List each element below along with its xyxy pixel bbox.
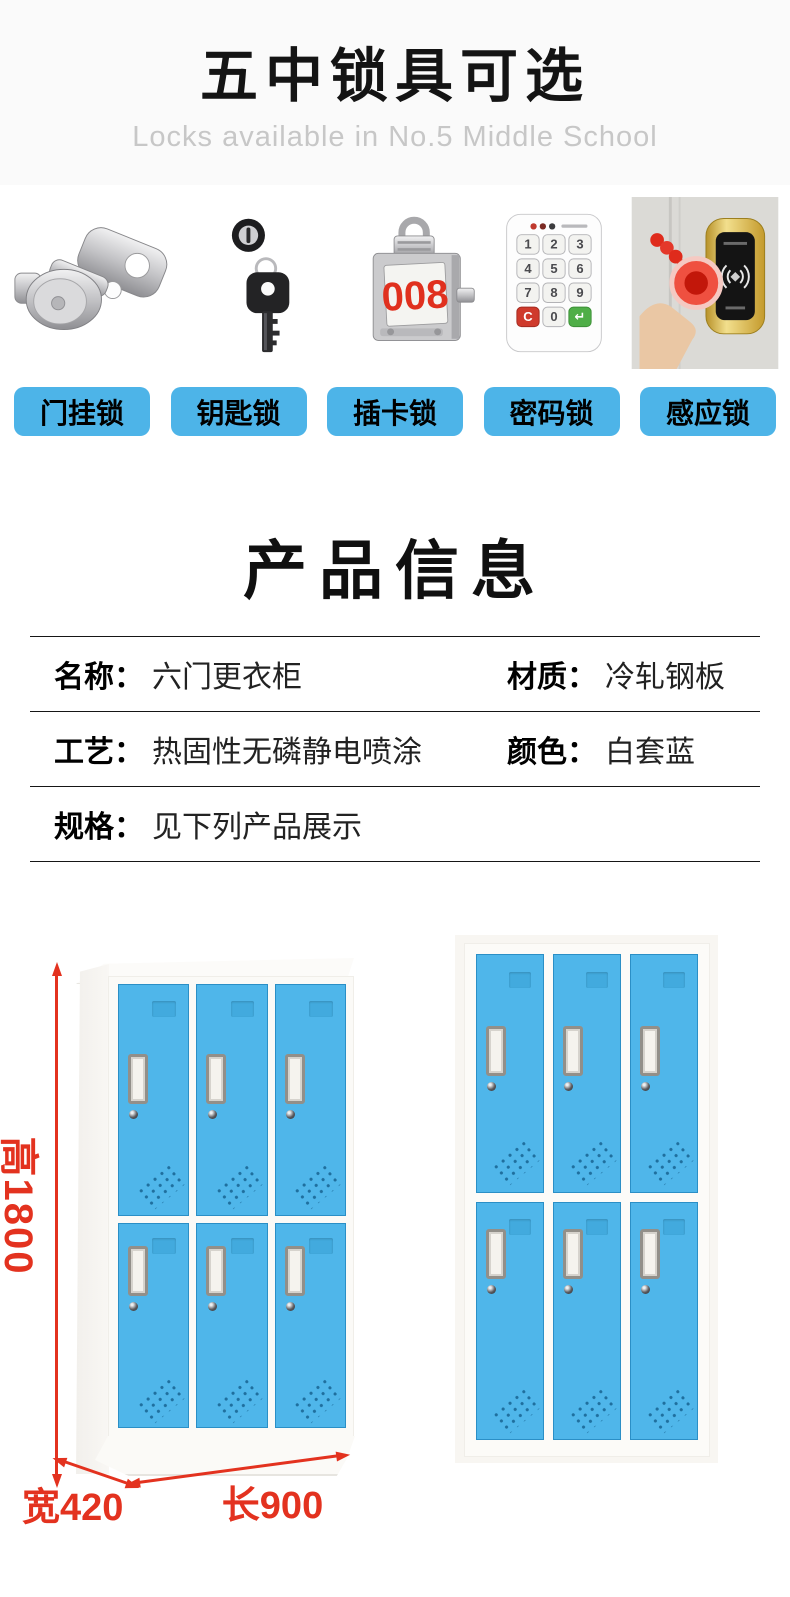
field-label: 材质：	[507, 652, 597, 696]
induction-lock-button[interactable]: 感应锁	[640, 387, 776, 436]
field-value: 热固性无磷静电喷涂	[152, 727, 422, 771]
locker-door	[196, 1223, 267, 1428]
table-row: 工艺： 热固性无磷静电喷涂 颜色： 白套蓝	[30, 712, 760, 787]
door-name-card	[231, 1238, 255, 1254]
door-vents	[644, 1387, 694, 1435]
door-keyhole-icon	[129, 1110, 138, 1119]
key-lock-button[interactable]: 钥匙锁	[171, 387, 307, 436]
door-handle	[486, 1026, 506, 1076]
door-keyhole-icon	[208, 1302, 217, 1311]
door-name-card	[309, 1001, 333, 1017]
induction-lock-icon	[631, 197, 779, 369]
card-lock-number: 008	[381, 272, 450, 319]
table-cell: 名称： 六门更衣柜	[54, 652, 507, 696]
door-keyhole-icon	[286, 1302, 295, 1311]
keypad-key-enter: ↵	[574, 309, 585, 324]
door-handle	[128, 1054, 148, 1104]
door-vents	[213, 1164, 263, 1212]
field-value: 六门更衣柜	[152, 652, 302, 696]
door-name-card	[586, 972, 608, 988]
keypad-key: 9	[576, 285, 583, 300]
door-name-card	[231, 1001, 255, 1017]
door-keyhole-icon	[487, 1285, 496, 1294]
lock-photo-strip: 008	[0, 185, 790, 381]
keypad-key: 8	[550, 285, 557, 300]
door-handle	[640, 1026, 660, 1076]
hasp-lock-button[interactable]: 门挂锁	[14, 387, 150, 436]
door-keyhole-icon	[641, 1285, 650, 1294]
card-lock-button[interactable]: 插卡锁	[327, 387, 463, 436]
door-handle	[285, 1054, 305, 1104]
locker-door	[630, 1202, 698, 1441]
width-dimension-label: 宽420	[22, 1476, 123, 1531]
keypad-key: 6	[576, 261, 583, 276]
field-label: 工艺：	[54, 727, 144, 771]
keypad-key: 3	[576, 237, 583, 252]
door-vents	[567, 1387, 617, 1435]
door-handle	[640, 1229, 660, 1279]
locker-door	[630, 954, 698, 1193]
door-name-card	[509, 1219, 531, 1235]
table-cell: 规格： 见下列产品展示	[54, 802, 507, 846]
door-vents	[292, 1164, 342, 1212]
table-row: 名称： 六门更衣柜 材质： 冷轧钢板	[30, 637, 760, 712]
door-handle	[206, 1054, 226, 1104]
keypad-key: 1	[524, 237, 531, 252]
password-lock-photo: 1 2 3 4 5 6 7 8 9 C 0 ↵	[501, 212, 606, 354]
hasp-lock-photo	[10, 223, 175, 343]
field-label: 名称：	[54, 652, 144, 696]
keypad-key: 0	[550, 309, 557, 324]
door-name-card	[663, 1219, 685, 1235]
card-lock-icon: 008	[354, 212, 476, 354]
table-cell: 工艺： 热固性无磷静电喷涂	[54, 727, 507, 771]
door-handle	[128, 1246, 148, 1296]
locker-door	[553, 1202, 621, 1441]
field-value: 见下列产品展示	[152, 802, 362, 846]
card-lock-photo: 008	[353, 212, 478, 354]
product-showcase: 高1800 宽420 长900	[0, 890, 790, 1597]
door-name-card	[309, 1238, 333, 1254]
locker-door	[476, 954, 544, 1193]
password-lock-icon: 1 2 3 4 5 6 7 8 9 C 0 ↵	[502, 212, 606, 354]
right-locker-doors	[476, 954, 698, 1440]
field-value: 白套蓝	[605, 727, 695, 771]
page-subtitle: Locks available in No.5 Middle School	[0, 121, 790, 154]
locker-door	[275, 984, 346, 1216]
door-keyhole-icon	[641, 1082, 650, 1091]
door-vents	[490, 1140, 540, 1188]
door-keyhole-icon	[208, 1110, 217, 1119]
door-vents	[135, 1377, 185, 1425]
door-handle	[563, 1229, 583, 1279]
locker-door	[118, 984, 189, 1216]
door-name-card	[586, 1219, 608, 1235]
locker-door	[196, 984, 267, 1216]
lock-label-row: 门挂锁 钥匙锁 插卡锁 密码锁 感应锁	[0, 381, 790, 436]
left-locker-side	[76, 964, 109, 1474]
field-label: 规格：	[54, 802, 144, 846]
door-keyhole-icon	[564, 1082, 573, 1091]
table-cell: 材质： 冷轧钢板	[507, 652, 725, 696]
field-value: 冷轧钢板	[605, 652, 725, 696]
keypad-key: 2	[550, 237, 557, 252]
key-lock-icon	[205, 210, 323, 356]
product-info-title: 产品信息	[0, 520, 790, 612]
door-vents	[644, 1140, 694, 1188]
product-info-table: 名称： 六门更衣柜 材质： 冷轧钢板 工艺： 热固性无磷静电喷涂 颜色： 白套蓝…	[30, 636, 760, 862]
keypad-key-clear: C	[523, 309, 533, 324]
door-vents	[135, 1164, 185, 1212]
door-vents	[213, 1377, 263, 1425]
door-handle	[486, 1229, 506, 1279]
door-handle	[206, 1246, 226, 1296]
length-dimension-label: 长900	[205, 1474, 340, 1529]
door-handle	[285, 1246, 305, 1296]
locker-door	[118, 1223, 189, 1428]
door-vents	[490, 1387, 540, 1435]
table-row: 规格： 见下列产品展示	[30, 787, 760, 862]
door-handle	[563, 1026, 583, 1076]
door-name-card	[509, 972, 531, 988]
page-title: 五中锁具可选	[0, 0, 790, 111]
locker-door	[553, 954, 621, 1193]
door-vents	[292, 1377, 342, 1425]
password-lock-button[interactable]: 密码锁	[484, 387, 620, 436]
locker-door	[275, 1223, 346, 1428]
door-keyhole-icon	[286, 1110, 295, 1119]
hasp-lock-icon	[13, 223, 173, 343]
height-dimension-label: 高1800	[9, 1121, 51, 1291]
table-cell: 颜色： 白套蓝	[507, 727, 695, 771]
field-label: 颜色：	[507, 727, 597, 771]
left-locker-doors	[118, 984, 346, 1428]
keypad-key: 5	[550, 261, 557, 276]
induction-lock-photo	[630, 197, 780, 369]
locker-door	[476, 1202, 544, 1441]
door-name-card	[663, 972, 685, 988]
key-lock-photo	[199, 210, 329, 356]
keypad-key: 7	[524, 285, 531, 300]
door-name-card	[152, 1001, 176, 1017]
door-keyhole-icon	[129, 1302, 138, 1311]
height-dimension-arrow	[55, 975, 58, 1475]
door-keyhole-icon	[487, 1082, 496, 1091]
door-vents	[567, 1140, 617, 1188]
keypad-key: 4	[524, 261, 532, 276]
door-name-card	[152, 1238, 176, 1254]
header: 五中锁具可选 Locks available in No.5 Middle Sc…	[0, 0, 790, 185]
door-keyhole-icon	[564, 1285, 573, 1294]
